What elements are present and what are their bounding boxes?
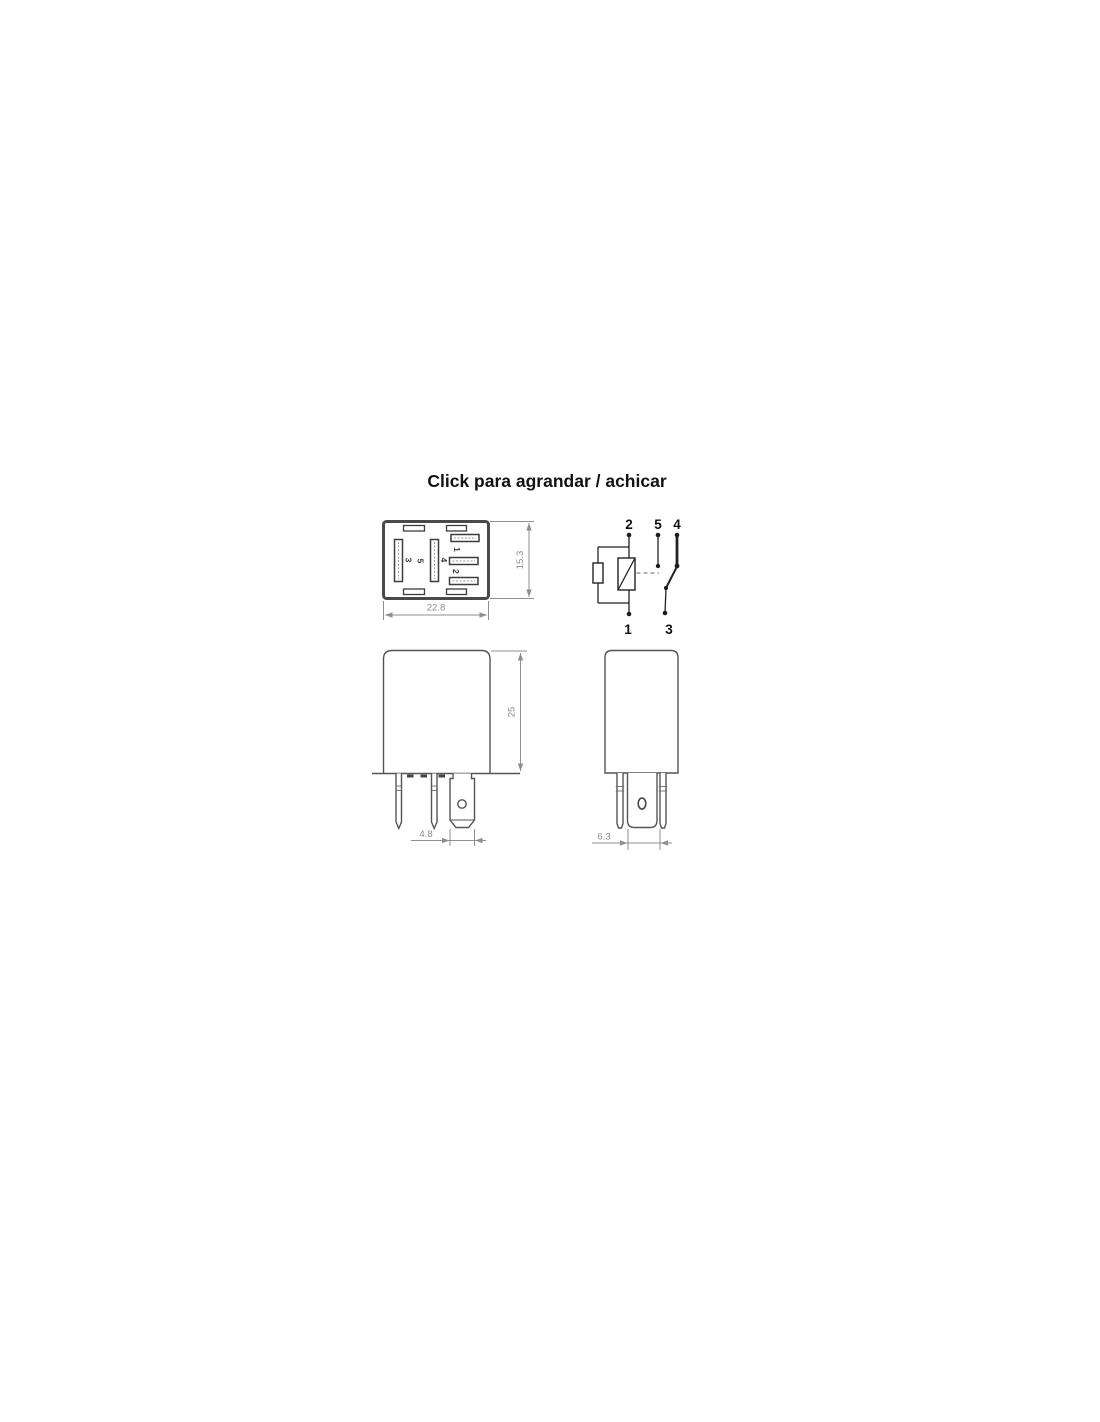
dimension-blade-4-8: 4.8 <box>411 829 486 846</box>
dimension-height-25: 25 <box>491 651 527 771</box>
schematic-pin2-label: 2 <box>625 517 633 532</box>
blade-hole <box>458 800 466 808</box>
bottom-view-drawing: 3 5 4 1 2 22.8 15.3 <box>373 503 543 630</box>
side-view-drawing: 6.3 <box>588 645 686 853</box>
dimension-spacing-6-3: 6.3 <box>592 829 672 850</box>
side-terminals <box>616 773 667 828</box>
dimension-width-22-8: 22.8 <box>384 601 489 620</box>
pin4-label: 4 <box>439 558 449 563</box>
schematic-pin3-label: 3 <box>665 622 673 637</box>
dim-6-3-label: 6.3 <box>597 832 610 843</box>
pin5-label: 5 <box>416 559 426 564</box>
image-caption-title: Click para agrandar / achicar <box>400 471 694 492</box>
dim-height-label: 15.3 <box>515 551 526 570</box>
switch-arm <box>666 567 677 589</box>
schematic-pin4-label: 4 <box>673 517 681 532</box>
side-pin-left <box>617 773 623 828</box>
circuit-schematic-drawing: 2 5 4 1 3 <box>588 508 688 640</box>
pin1-label: 1 <box>452 547 462 552</box>
dim-4-8-label: 4.8 <box>419 829 432 840</box>
page: Click para agrandar / achicar <box>0 0 1100 1422</box>
relay-body-front <box>372 651 520 778</box>
front-terminals <box>396 774 475 829</box>
dim-25-label: 25 <box>507 707 518 718</box>
pin3-label: 3 <box>404 558 414 563</box>
front-view-drawing: 25 4.8 <box>368 645 533 853</box>
resistor-symbol <box>593 563 603 583</box>
dimension-height-15-3: 15.3 <box>490 522 534 599</box>
coil-pin-middle <box>432 774 438 829</box>
blade-hole-side <box>638 798 646 809</box>
coil-circuit <box>593 535 635 614</box>
schematic-pin5-label: 5 <box>654 517 662 532</box>
contact-circuit <box>637 535 678 613</box>
coil-pin-left <box>396 774 402 829</box>
schematic-pin1-label: 1 <box>624 622 632 637</box>
relay-body-side <box>605 651 678 774</box>
pin2-label: 2 <box>451 569 461 574</box>
side-pin-right <box>660 773 666 828</box>
dim-width-label: 22.8 <box>427 603 446 614</box>
